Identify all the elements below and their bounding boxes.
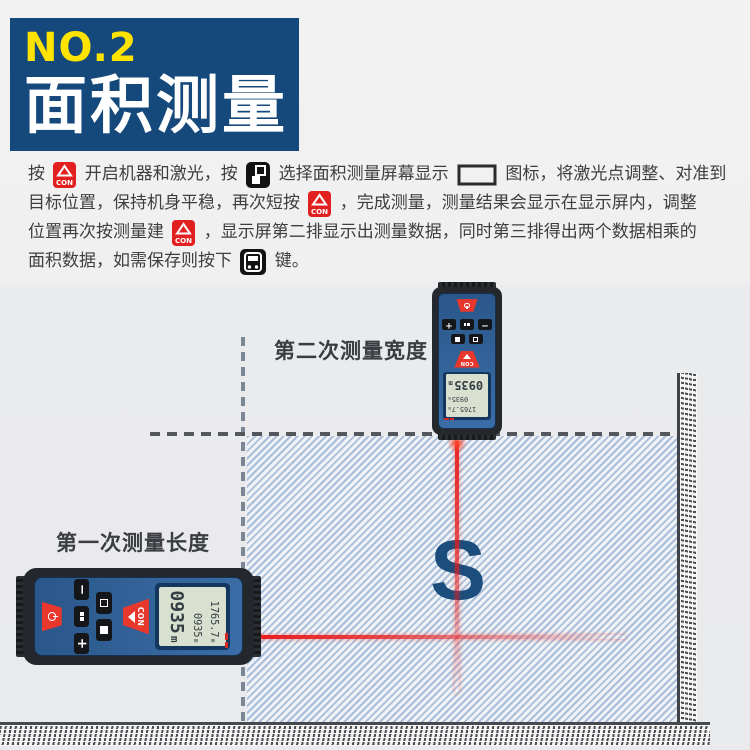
device-shell: 1765.7m0935m0935mCON−+	[23, 568, 253, 665]
key-row: −+	[442, 319, 493, 330]
laser-beam-horizontal	[253, 635, 625, 639]
lcd-reading: 1765.7m	[208, 591, 218, 643]
instruction-text: 位置再次按测量建	[28, 218, 169, 247]
instruction-line: 目标位置，保持机身平稳，再次短按 CON ，完成测量，测量结果会显示在显示屏内，…	[28, 189, 738, 218]
svg-text:CON: CON	[56, 179, 73, 187]
units-button	[96, 592, 112, 614]
section-banner: NO.2 面积测量	[10, 18, 299, 151]
instruction-text: 目标位置，保持机身平稳，再次短按	[28, 189, 305, 218]
instruction-text: 开启机器和激光，按	[79, 160, 243, 189]
instruction-text: 键。	[269, 247, 308, 276]
save-button	[451, 334, 466, 345]
device-screen: 1765.7m0935m0935m	[443, 372, 491, 420]
lcd-reading: 0935m	[448, 395, 485, 402]
units-button-icon	[246, 162, 270, 188]
area-rect-icon	[457, 164, 497, 186]
lcd-reading: 0935m	[191, 591, 201, 643]
plus-button: +	[442, 319, 457, 330]
lcd-reading: 0935m	[448, 379, 485, 391]
instruction-text: 图标，将激光点调整、对准到	[500, 160, 726, 189]
device-face: 1765.7m0935m0935mCON−+	[438, 293, 495, 428]
key-row: −+	[74, 579, 90, 655]
power-icon	[48, 612, 56, 620]
brand-mark	[221, 631, 239, 648]
svg-text:CON: CON	[311, 208, 328, 216]
function-button	[460, 319, 475, 330]
power-icon	[464, 303, 470, 309]
lcd-reading: 1765.7m	[448, 405, 485, 412]
minus-button: −	[74, 579, 90, 601]
minus-button: −	[478, 319, 493, 330]
banner-title: 面积测量	[24, 70, 299, 142]
instruction-text: ，显示屏第二排显示出测量数据，同时第三排得出两个数据相乘的	[198, 218, 696, 247]
instruction-line: 位置再次按测量建 CON ，显示屏第二排显示出测量数据，同时第三排得出两个数据相…	[28, 218, 738, 247]
dashed-line-vertical	[241, 337, 245, 724]
instruction-line: 按 CON 开启机器和激光，按 选择面积测量屏幕显示 图标，将激光点调整、对准到	[28, 160, 738, 189]
floor-texture-bottom	[0, 722, 710, 746]
power-button	[42, 602, 62, 632]
units-button	[469, 334, 484, 345]
banner-number: NO.2	[24, 26, 299, 70]
wall-texture-right	[677, 373, 697, 744]
function-button	[74, 606, 90, 628]
con-measure-button: CON	[123, 599, 149, 635]
save-button	[96, 619, 112, 641]
instruction-text: ，完成测量，测量结果会显示在显示屏内，调整	[334, 189, 696, 218]
label-second-measure-width: 第二次测量宽度	[274, 335, 428, 365]
label-first-measure-length: 第一次测量长度	[56, 527, 210, 557]
plus-button: +	[74, 633, 90, 655]
keypad: −+	[444, 315, 491, 348]
laser-meter-left: 1765.7m0935m0935mCON−+	[16, 568, 261, 665]
instruction-line: 面积数据，如需保存则按下 键。	[28, 247, 738, 276]
key-row	[96, 592, 112, 641]
con-button-icon: CON	[53, 162, 76, 188]
instructions-paragraph: 按 CON 开启机器和激光，按 选择面积测量屏幕显示 图标，将激光点调整、对准到…	[28, 160, 738, 276]
instruction-text: 选择面积测量屏幕显示	[273, 160, 454, 189]
power-button	[456, 299, 477, 312]
device-screen: 1765.7m0935m0935m	[155, 583, 230, 650]
keypad: −+	[67, 584, 119, 649]
con-button-icon: CON	[172, 220, 195, 246]
instruction-text: 面积数据，如需保存则按下	[28, 247, 237, 276]
key-row	[451, 334, 484, 345]
save-button-icon	[240, 249, 266, 275]
con-measure-button: CON	[454, 351, 480, 368]
svg-text:CON: CON	[175, 237, 192, 245]
device-lcd: 1765.7m0935m0935m	[159, 587, 226, 646]
lcd-reading: 0935m	[167, 591, 185, 643]
device-shell: 1765.7m0935m0935mCON−+	[432, 287, 502, 436]
instruction-text: 按	[28, 160, 50, 189]
brand-mark	[444, 415, 455, 426]
page: NO.2 面积测量 按 CON 开启机器和激光，按 选择面积测量屏幕显示 图标，…	[0, 0, 750, 750]
laser-beam-vertical	[455, 441, 459, 693]
device-lcd: 1765.7m0935m0935m	[446, 374, 488, 416]
laser-meter-top: 1765.7m0935m0935mCON−+	[432, 282, 502, 440]
dashed-line-horizontal	[150, 432, 677, 436]
device-face: 1765.7m0935m0935mCON−+	[34, 577, 244, 657]
con-button-icon: CON	[308, 191, 331, 217]
